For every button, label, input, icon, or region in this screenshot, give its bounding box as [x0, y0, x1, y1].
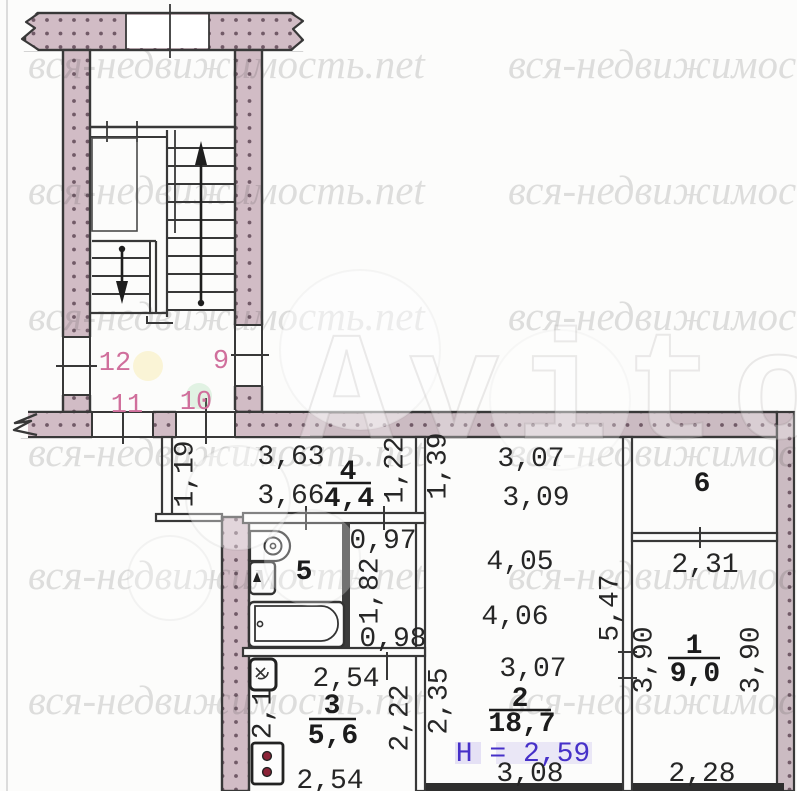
svg-text:3,08: 3,08: [496, 759, 563, 790]
svg-text:вся-недвижимость.net: вся-недвижимость.net: [28, 41, 426, 87]
svg-text:3,63: 3,63: [257, 442, 324, 473]
svg-text:11: 11: [111, 391, 143, 421]
svg-text:вся-недвижимость.net: вся-недвижимость.net: [28, 167, 426, 213]
svg-text:2,54: 2,54: [312, 664, 379, 695]
svg-text:4,06: 4,06: [481, 602, 548, 633]
svg-text:9,0: 9,0: [670, 659, 720, 690]
svg-text:2,28: 2,28: [668, 759, 735, 790]
svg-text:1,19: 1,19: [171, 440, 202, 507]
svg-text:2,31: 2,31: [671, 550, 738, 581]
svg-text:3,90: 3,90: [630, 626, 661, 693]
svg-text:3,66: 3,66: [257, 481, 324, 512]
svg-text:2,35: 2,35: [425, 667, 456, 734]
svg-text:4,05: 4,05: [486, 547, 553, 578]
svg-text:5: 5: [296, 557, 313, 588]
svg-text:вся-недвижимост: вся-недвижимост: [508, 167, 797, 213]
svg-text:9: 9: [213, 347, 229, 377]
svg-text:1,22: 1,22: [381, 436, 412, 503]
svg-text:2,54: 2,54: [296, 766, 363, 791]
svg-text:2,22: 2,22: [386, 684, 417, 751]
svg-text:3: 3: [324, 691, 341, 722]
svg-text:3,90: 3,90: [737, 626, 768, 693]
svg-text:5,47: 5,47: [596, 574, 627, 641]
svg-text:0,97: 0,97: [349, 526, 416, 557]
svg-text:6: 6: [694, 469, 711, 500]
svg-text:2,1: 2,1: [249, 689, 280, 739]
svg-text:3,09: 3,09: [502, 483, 569, 514]
svg-text:вся-недвижимост: вся-недвижимост: [508, 41, 797, 87]
svg-text:12: 12: [99, 349, 131, 379]
svg-text:3,07: 3,07: [499, 654, 566, 685]
svg-text:0,98: 0,98: [359, 624, 426, 655]
svg-text:18,7: 18,7: [488, 709, 555, 740]
svg-text:4,4: 4,4: [324, 484, 374, 515]
svg-text:1,82: 1,82: [356, 557, 387, 624]
svg-text:1,39: 1,39: [424, 432, 455, 499]
svg-text:10: 10: [180, 388, 212, 418]
svg-text:5,6: 5,6: [308, 721, 358, 752]
svg-text:3,07: 3,07: [497, 444, 564, 475]
